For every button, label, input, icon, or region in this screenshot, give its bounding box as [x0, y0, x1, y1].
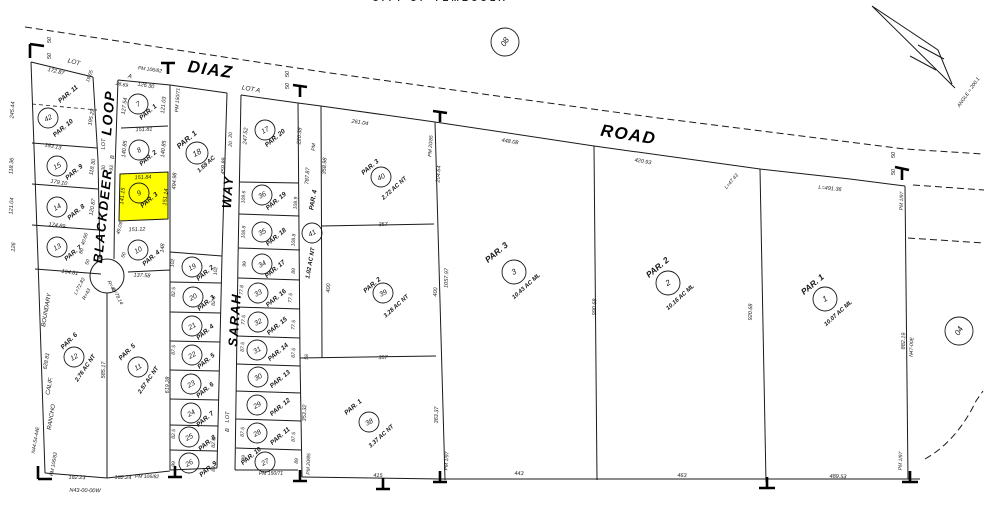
dimension-label: 108.9 [293, 196, 300, 209]
svg-text:27: 27 [259, 457, 271, 468]
dimension-label: 126 [11, 241, 18, 252]
reference-label: PM 106/82 [49, 452, 59, 477]
dimension-label: 148 [160, 242, 167, 253]
parcel-number-15: 15 [47, 156, 67, 176]
dimension-label: 102 [170, 258, 177, 267]
dimension-label: 121.03 [160, 95, 168, 113]
reference-label: PM 1/97 [898, 451, 905, 470]
svg-text:29: 29 [251, 401, 262, 412]
parcel-label: PAR. 1 [138, 103, 158, 122]
street-name-road: ROAD [599, 121, 657, 149]
svg-text:23: 23 [185, 380, 196, 391]
parcel-label: PAR. 18 [265, 227, 288, 248]
parcel-number-14: 14 [47, 197, 67, 217]
svg-text:38: 38 [364, 418, 374, 428]
dimension-label: 50 [891, 168, 897, 175]
dimension-label: 108.8 [291, 233, 298, 246]
acreage-label: 10.07 AC ML [823, 299, 854, 327]
dimension-label: 357 [378, 355, 388, 361]
dimension-label: 87.5 [291, 348, 298, 358]
dimension-label: L=78.14 [110, 287, 124, 306]
dimension-label: 151.12 [129, 227, 146, 234]
parcel-label: PAR. 11 [57, 84, 80, 105]
svg-text:7: 7 [135, 100, 143, 109]
dimension-label: 121.04 [8, 197, 15, 214]
dimension-label: 151.81 [136, 127, 153, 134]
svg-text:14: 14 [52, 203, 62, 213]
dimension-label: 50 [285, 82, 291, 89]
parcel-label: PAR. 10 [52, 118, 75, 139]
dimension-label: R=43 [81, 288, 92, 302]
dimension-label: 494.98 [172, 172, 179, 190]
reference-label: LOT [67, 58, 82, 68]
svg-text:08: 08 [499, 35, 512, 48]
map-title: CITY OF TEMECULA [330, 0, 550, 3]
dimension-label: 89 [291, 268, 297, 274]
parcel-number-29: 29 [247, 395, 267, 415]
dimension-label: 20 [228, 141, 234, 148]
dimension-label: 151.14 [162, 188, 170, 205]
svg-text:25: 25 [183, 433, 194, 444]
dimension-label: 20 [228, 132, 234, 139]
dimension-label: 82.5 [171, 287, 178, 297]
parcel-label: PAR. 1 [343, 398, 363, 417]
reference-label: LOT [101, 138, 108, 150]
reference-label: LOT A [241, 84, 260, 94]
dimension-label: L=491.36 [818, 185, 843, 193]
parcel-number-3: 3 [502, 260, 526, 284]
dimension-label: 140.85 [160, 139, 168, 157]
reference-label: PM 20/85 [306, 453, 313, 475]
svg-text:10: 10 [133, 246, 143, 256]
svg-text:24: 24 [185, 409, 196, 420]
svg-text:39: 39 [378, 289, 388, 299]
parcel-number-20: 20 [183, 287, 203, 307]
reference-label: ANGLE = 200.1 [956, 76, 982, 109]
svg-text:15: 15 [52, 162, 62, 172]
dimension-label: 182.23 [69, 475, 87, 481]
parcel-label: PAR. 2 [644, 255, 671, 280]
parcel-label: PAR. 17 [264, 259, 287, 280]
parcel-label: PAR. 14 [267, 342, 290, 363]
svg-text:1: 1 [821, 294, 829, 304]
dimension-label: 99 [171, 461, 177, 467]
dimension-label: 619.28 [165, 376, 172, 394]
reference-label: CALIF. [45, 377, 54, 396]
parcel-number-33: 33 [248, 283, 268, 303]
acreage-label: 10.16 AC ML [665, 283, 696, 311]
dimension-label: 109.6 [241, 190, 248, 203]
dimension-label: 99 [242, 261, 248, 267]
parcel-number-36: 36 [252, 185, 272, 205]
dimension-label: 50 [47, 36, 53, 43]
parcel-label: PAR. 15 [266, 316, 289, 337]
dimension-label: 140.85 [121, 139, 129, 157]
cul-de-sac-bulb [90, 259, 124, 293]
acreage-label: 3.28 AC NT [383, 293, 411, 319]
dimension-label: 182.24 [115, 475, 132, 481]
parcel-number-39: 39 [373, 283, 393, 303]
reference-label: RANCHO [47, 404, 57, 431]
dimension-label: 990.68 [592, 298, 599, 316]
svg-text:26: 26 [183, 459, 194, 470]
svg-text:3: 3 [510, 267, 519, 277]
dimension-label: 261.04 [350, 119, 369, 128]
reference-label: PM 150/71 [174, 88, 182, 113]
parcel-number-1: 1 [813, 287, 837, 311]
parcel-number-40: 40 [371, 167, 391, 187]
dimension-label: 87.5 [240, 342, 247, 352]
parcel-number-31: 31 [247, 340, 267, 360]
street-name-loop: LOOP [98, 89, 118, 136]
dimension-label: 50 [47, 52, 53, 59]
parcel-number-30: 30 [248, 367, 268, 387]
svg-text:41: 41 [307, 229, 317, 239]
parcel-number-7: 7 [128, 94, 148, 114]
svg-text:30: 30 [253, 373, 263, 383]
parcel-number-19: 19 [182, 257, 202, 277]
dimension-label: 787.87 [304, 167, 311, 185]
reference-label: BOUNDARY [41, 292, 53, 327]
parcel-map: 172.8719.05245.44195.29183.13118.36118.3… [0, 0, 984, 519]
reference-label: PM 20/85 [427, 135, 434, 157]
svg-text:34: 34 [257, 260, 267, 270]
dimension-label: 137.58 [133, 273, 151, 280]
parcel-label: PAR. 11 [269, 426, 292, 447]
svg-text:42: 42 [43, 114, 53, 124]
parcel-number-13: 13 [47, 237, 67, 257]
svg-text:31: 31 [252, 346, 262, 356]
street-name-diaz: DIAZ [187, 57, 235, 82]
parcel-label: PAR. 13 [269, 369, 292, 390]
parcel-number-42: 42 [38, 108, 58, 128]
dimension-label: 164.81 [61, 269, 78, 277]
svg-text:28: 28 [251, 429, 262, 440]
parcel-label: PAR. 1 [175, 129, 199, 151]
parcel-number-24: 24 [181, 403, 201, 423]
dimension-label: 89 [294, 458, 300, 464]
dimension-label: 415 [373, 473, 383, 479]
svg-text:2: 2 [663, 278, 673, 289]
parcel-number-12: 12 [64, 347, 84, 367]
dimension-label: 463 [677, 473, 687, 479]
svg-text:21: 21 [186, 322, 197, 333]
dimension-label: 353.32 [302, 405, 309, 422]
parcel-number-35: 35 [252, 222, 272, 242]
dimension-label: 1057.97 [444, 267, 451, 288]
reference-label: PM 1/97 [899, 191, 906, 210]
rancho-california-boundary [31, 62, 45, 473]
dimension-label: 58 [304, 354, 310, 360]
dimension-label: 585.17 [101, 361, 108, 379]
road-edge [31, 62, 905, 186]
section-marker-08: 08 [491, 28, 519, 56]
parcel-number-34: 34 [252, 254, 272, 274]
parcel-label: PAR. 19 [265, 191, 288, 212]
dimension-label: 245.44 [9, 101, 16, 119]
east-strip-lot-lines [236, 103, 302, 477]
dimension-label: 363.37 [434, 406, 441, 424]
svg-text:22: 22 [186, 351, 197, 362]
parcel-number-23: 23 [181, 374, 201, 394]
parcel-label: PAR. 3 [483, 240, 510, 265]
dimension-label: 420.93 [634, 158, 653, 167]
reference-label: PM [311, 142, 318, 151]
parcel-number-17: 17 [255, 120, 275, 140]
dimension-label: 247.52 [242, 127, 249, 145]
dimension-label: 50 [285, 70, 291, 77]
dimension-label: 50 [891, 151, 897, 158]
svg-text:17: 17 [260, 125, 271, 136]
reference-label: PM 106/82 [137, 65, 162, 74]
svg-text:8: 8 [136, 147, 143, 155]
parcel-number-28: 28 [247, 423, 267, 443]
dimension-label: 172.87 [47, 67, 66, 77]
svg-text:18: 18 [191, 147, 204, 160]
reference-label: B [225, 428, 231, 432]
dimension-label: 40.66 [80, 232, 90, 246]
parcel-label: PAR. 16 [265, 288, 288, 309]
parcel-label: PAR. 5 [118, 342, 138, 362]
dimension-label: 108.8 [241, 225, 248, 238]
parcel-number-32: 32 [248, 312, 268, 332]
dimension-label: 882.19 [901, 333, 908, 350]
dimension-label: 443 [514, 471, 524, 477]
dimension-label: 400 [326, 282, 333, 293]
section-marker-04: 04 [945, 317, 973, 345]
dimension-label: 174.89 [48, 222, 65, 230]
dimension-label: 400 [433, 286, 440, 297]
parcel-number-38: 38 [359, 412, 379, 432]
map-text-layer: 172.8719.05245.44195.29183.13118.36118.3… [8, 28, 981, 494]
reference-label: N44-54-44E [31, 426, 42, 454]
dimension-label: 358.98 [321, 157, 328, 175]
svg-text:13: 13 [52, 243, 62, 253]
dimension-label: 183.13 [44, 142, 63, 152]
acreage-label: 3.37 AC NT [368, 423, 396, 449]
north-arrow-icon [872, 6, 955, 88]
dimension-label: 920.68 [748, 303, 755, 321]
svg-text:40: 40 [376, 173, 386, 183]
parcel-number-26: 26 [179, 453, 199, 473]
dimension-label: 118.36 [8, 157, 15, 175]
svg-text:33: 33 [253, 289, 263, 299]
svg-text:32: 32 [253, 318, 263, 328]
dimension-label: 118.30 [89, 158, 98, 176]
street-name-way: WAY [219, 175, 236, 209]
dimension-label: 82.5 [171, 429, 178, 439]
parcel-number-27: 27 [255, 452, 275, 472]
east-boundary [905, 186, 908, 479]
dimension-label: 87.5 [291, 432, 298, 442]
acreage-label: 1.02 AC NT [305, 246, 317, 279]
parcel-number-10: 10 [128, 240, 148, 260]
dimension-label: 77.5 [291, 320, 298, 330]
parcel-number-22: 22 [182, 345, 202, 365]
dimension-label: 628.81 [43, 352, 52, 370]
dimension-label: L=47.43 [724, 173, 740, 191]
dimension-label: 459.89 [221, 157, 228, 174]
dimension-label: 50 [120, 251, 128, 258]
parcel-number-41: 41 [302, 223, 322, 243]
svg-text:35: 35 [257, 228, 267, 238]
dimension-label: 151.84 [135, 175, 152, 182]
parcel-label: PAR. 12 [269, 397, 292, 418]
parcel-number-8: 8 [129, 140, 149, 160]
reference-label: N43-00-00W [69, 488, 101, 495]
parcel-label: PAR. 8 [66, 203, 86, 222]
reference-label: PM 1/97 [443, 451, 450, 470]
parcel-number-11: 11 [128, 357, 148, 377]
parcel-number-18: 18 [186, 142, 208, 164]
svg-text:11: 11 [134, 363, 144, 373]
svg-text:12: 12 [69, 353, 79, 363]
lot-line-dashed [32, 104, 97, 110]
parcel-number-2: 2 [656, 271, 680, 295]
reference-label: N47-00E [909, 336, 916, 357]
dimension-label: 220.38 [296, 127, 303, 146]
corner-return-dashes [925, 391, 983, 459]
reference-label: PM 106/82 [135, 474, 160, 480]
large-parcel-dividers [594, 146, 766, 482]
dimension-label: 87.5 [171, 345, 178, 355]
dimension-label: 77.5 [288, 293, 295, 303]
acreage-label: 10.43 AC ML [511, 272, 542, 300]
svg-text:36: 36 [257, 191, 267, 201]
reference-label: A [126, 74, 132, 81]
parcel-label: PAR. 4 [308, 189, 319, 211]
parcel-label: PAR. 4 [195, 323, 215, 342]
svg-text:20: 20 [187, 293, 198, 304]
dimension-label: 204.64 [435, 165, 442, 183]
dimension-label: 26.69 [114, 81, 129, 90]
road-continuation-dashes [908, 185, 984, 243]
street-name-sarah: SARAH [225, 293, 244, 348]
dimension-label: 489.53 [829, 474, 847, 481]
svg-text:19: 19 [187, 263, 197, 273]
parcel-map-page: 172.8719.05245.44195.29183.13118.36118.3… [0, 0, 984, 519]
dimension-label: 357 [378, 222, 388, 228]
parcel-number-21: 21 [182, 316, 202, 336]
reference-label: LOT [225, 411, 232, 423]
parcel-number-25: 25 [179, 427, 199, 447]
svg-text:04: 04 [953, 324, 966, 337]
parcel-label: PAR. 1 [799, 272, 826, 297]
dimension-label: 448.08 [501, 138, 519, 147]
dimension-label: 87.5 [240, 427, 247, 437]
dimension-label: 49.09 [115, 221, 124, 235]
